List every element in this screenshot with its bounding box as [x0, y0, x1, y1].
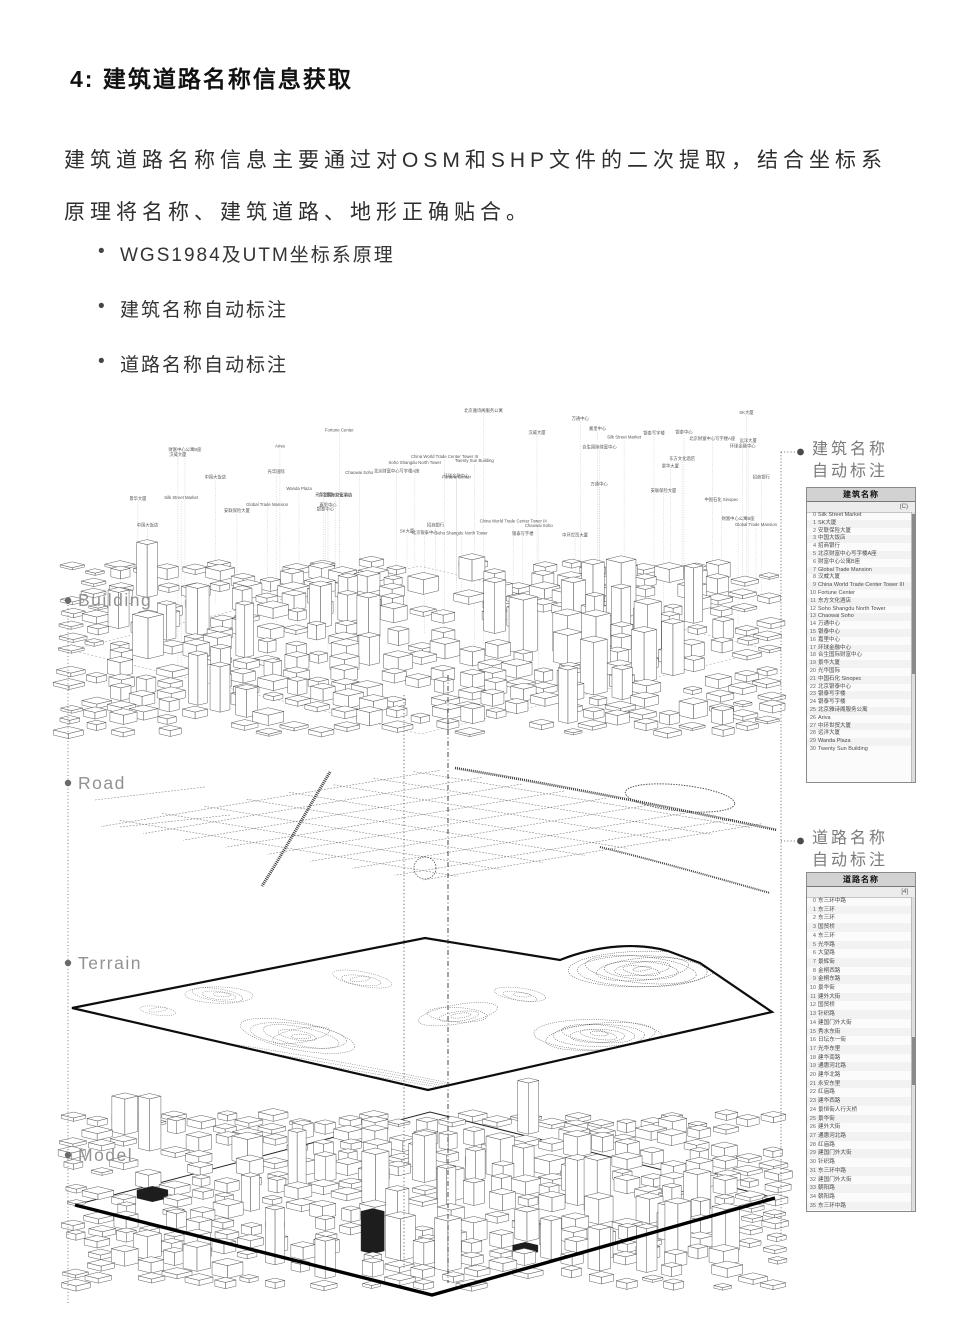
svg-text:Silk Street Market: Silk Street Market [164, 495, 199, 500]
city-block [241, 1222, 261, 1235]
bullet-icon: • [98, 351, 107, 373]
city-block [713, 1124, 738, 1134]
city-block [308, 621, 326, 640]
city-block [464, 1127, 485, 1146]
city-block [60, 716, 80, 724]
city-block [82, 610, 111, 624]
building-names-panel: 建筑名称 (C) 0Silk Street Market1SK大厦2安联保险大厦… [806, 487, 916, 783]
list-item[interactable]: 1SK大厦 [807, 520, 911, 528]
list-item[interactable]: 35东三环中路 [807, 1202, 911, 1211]
city-block [82, 1126, 112, 1140]
svg-text:Silk Street Market: Silk Street Market [607, 434, 642, 439]
city-block [258, 601, 289, 619]
city-block [684, 686, 702, 694]
model-layer-city [58, 1078, 792, 1295]
city-block [735, 670, 759, 682]
city-block [387, 706, 407, 718]
list-item[interactable]: 5光华路 [807, 941, 911, 950]
city-block [359, 632, 380, 665]
city-block [509, 593, 537, 654]
city-block [266, 1278, 285, 1288]
city-block [362, 1258, 383, 1277]
city-block [284, 1182, 312, 1200]
city-block [84, 1235, 110, 1248]
city-block [341, 1139, 362, 1151]
city-block [316, 1215, 335, 1230]
list-item[interactable]: 1东三环 [807, 906, 911, 915]
city-block [87, 720, 106, 730]
city-block [715, 1110, 738, 1121]
city-block [112, 727, 135, 737]
list-item[interactable]: 26建外大街 [807, 1123, 911, 1132]
city-block [589, 696, 607, 706]
city-block [534, 668, 552, 682]
svg-text:东方文化酒店: 东方文化酒店 [669, 455, 695, 462]
list-item[interactable]: 14万通中心 [807, 621, 911, 629]
city-block [762, 1217, 789, 1229]
svg-text:Chaowai Soho: Chaowai Soho [525, 523, 554, 528]
list-item[interactable]: 26Ariva [807, 715, 911, 723]
list-item[interactable]: 5北京财富中心写字楼A座 [807, 551, 911, 559]
city-block [192, 1175, 210, 1187]
svg-text:银泰写字楼: 银泰写字楼 [512, 530, 534, 537]
list-item[interactable]: 23建华西路 [807, 1097, 911, 1106]
city-block [563, 1130, 591, 1157]
list-item[interactable]: 0东三环中路 [807, 897, 911, 906]
city-block [712, 725, 734, 737]
city-block [334, 722, 360, 732]
city-block [612, 665, 632, 700]
city-block [167, 1209, 187, 1229]
city-block [654, 727, 682, 738]
list-item[interactable]: 20光华国际 [807, 668, 911, 676]
city-block [311, 1280, 337, 1290]
city-block [86, 569, 105, 576]
city-block [159, 725, 181, 736]
city-block [580, 636, 607, 695]
city-block [588, 1119, 614, 1128]
building-panel-list[interactable]: 0Silk Street Market1SK大厦2安联保险大厦3中国大饭店4招商… [807, 512, 911, 782]
building-panel-scrollbar[interactable] [911, 512, 915, 782]
city-block [314, 1152, 336, 1182]
svg-text:北京财富中心写字楼A座: 北京财富中心写字楼A座 [689, 435, 736, 442]
list-item[interactable]: 21永安东里 [807, 1080, 911, 1089]
svg-text:招商银行: 招商银行 [427, 522, 445, 529]
city-block [765, 1181, 791, 1193]
city-block [617, 1119, 636, 1133]
city-block [256, 728, 281, 736]
list-item[interactable]: 8汉威大厦 [807, 574, 911, 582]
city-block [213, 1199, 243, 1219]
city-block [742, 1214, 763, 1223]
city-block [158, 714, 176, 724]
city-block [88, 1249, 113, 1260]
list-item[interactable]: 32建国门外大街 [807, 1176, 911, 1185]
list-item[interactable]: 17光华东里 [807, 1045, 911, 1054]
city-block [57, 666, 86, 677]
list-item[interactable]: 4招商银行 [807, 543, 911, 551]
list-item[interactable]: 23银泰写字楼 [807, 691, 911, 699]
city-block [264, 692, 283, 701]
city-block [679, 698, 708, 719]
city-block [138, 1257, 164, 1273]
svg-text:中环世贸大厦: 中环世贸大厦 [562, 531, 588, 538]
svg-text:环球金融中心: 环球金融中心 [730, 442, 756, 449]
city-block [563, 559, 581, 568]
city-block [156, 564, 178, 580]
city-block [212, 1218, 234, 1229]
list-item[interactable]: 10景华街 [807, 984, 911, 993]
city-block [354, 570, 380, 593]
city-block [58, 645, 84, 653]
list-item[interactable]: 15银泰中心 [807, 629, 911, 637]
city-block [438, 1164, 456, 1210]
city-block [333, 689, 363, 709]
city-block [233, 657, 259, 670]
intro-paragraph: 建筑道路名称信息主要通过对OSM和SHP文件的二次提取，结合坐标系原理将名称、建… [64, 135, 909, 239]
list-item[interactable]: 28远洋大厦 [807, 730, 911, 738]
city-block [628, 708, 656, 720]
city-block [683, 655, 704, 671]
city-block [288, 1128, 306, 1188]
list-item[interactable]: 14建国门外大街 [807, 1019, 911, 1028]
list-item[interactable]: 34朝阳路 [807, 1193, 911, 1202]
city-block [183, 564, 208, 575]
list-item[interactable]: 31东三环中路 [807, 1167, 911, 1176]
city-block [387, 565, 406, 574]
list-item[interactable]: 25景华街 [807, 1115, 911, 1124]
city-block [455, 728, 485, 737]
city-block [62, 1279, 90, 1291]
city-block [380, 602, 407, 622]
city-block [186, 1132, 211, 1153]
city-block [760, 573, 779, 580]
road-panel-scrollbar[interactable] [911, 897, 915, 1211]
city-block [260, 577, 280, 591]
city-block [463, 1178, 484, 1206]
city-block [406, 674, 431, 688]
building-panel-title: 建筑名称 [807, 488, 915, 502]
city-block [485, 1211, 508, 1223]
list-item[interactable]: 28红庙路 [807, 1141, 911, 1150]
city-block [414, 1279, 434, 1290]
city-block [309, 727, 334, 737]
city-block [361, 1209, 384, 1254]
city-block [486, 708, 506, 719]
city-block [461, 669, 485, 688]
city-block [85, 639, 103, 647]
list-item[interactable]: 0Silk Street Market [807, 512, 911, 520]
list-item[interactable]: 9金桐东路 [807, 975, 911, 984]
city-block [739, 1225, 762, 1235]
city-block [263, 1195, 282, 1205]
city-block [91, 1168, 113, 1176]
city-block [714, 1283, 732, 1290]
city-block [443, 1272, 464, 1283]
list-item[interactable]: 24银泰写字楼 [807, 699, 911, 707]
city-block [489, 1257, 517, 1272]
model-layer-label: Model [78, 1145, 133, 1165]
svg-text:Soho Shangdu North Tower: Soho Shangdu North Tower [389, 460, 442, 465]
city-block [187, 1115, 216, 1129]
city-block [61, 1112, 86, 1121]
city-block [339, 1115, 361, 1127]
city-block [385, 1212, 415, 1261]
city-block [210, 662, 230, 712]
list-item[interactable]: 22红庙路 [807, 1088, 911, 1097]
list-item[interactable]: 16日坛东一街 [807, 1036, 911, 1045]
building-layer-label: Building [78, 590, 152, 610]
list-item[interactable]: 13Chaowai Soho [807, 613, 911, 621]
city-block [288, 677, 307, 696]
city-block [87, 1116, 107, 1127]
city-block [193, 1187, 214, 1199]
city-block [111, 683, 131, 701]
city-block [612, 1152, 642, 1170]
city-block [432, 610, 455, 624]
list-item[interactable]: 2东三环 [807, 914, 911, 923]
svg-text:光华国际: 光华国际 [268, 468, 286, 475]
svg-text:中国大饭店: 中国大饭店 [205, 474, 227, 481]
list-item[interactable]: 19景华大厦 [807, 660, 911, 668]
list-item[interactable]: 15秀水东街 [807, 1028, 911, 1037]
city-block [740, 1178, 758, 1188]
list-item[interactable]: 11东方文化酒店 [807, 598, 911, 606]
city-block [539, 1191, 565, 1212]
city-block [631, 626, 656, 682]
city-block [731, 576, 759, 586]
city-block [413, 1238, 434, 1265]
city-block [640, 1147, 663, 1165]
svg-text:景华大厦: 景华大厦 [129, 495, 147, 502]
list-item[interactable]: 11建外大街 [807, 993, 911, 1002]
city-block [661, 1262, 681, 1276]
city-block [218, 1111, 237, 1121]
city-block [481, 689, 504, 706]
city-block [362, 1148, 389, 1205]
city-block [334, 1125, 363, 1141]
city-block [763, 1210, 785, 1218]
city-block [259, 638, 277, 653]
city-block [89, 1225, 116, 1237]
road-names-panel: 道路名称 [4] 0东三环中路1东三环2东三环3国贸桥4东三环5光华路6大望路7… [806, 872, 916, 1212]
city-block [411, 1265, 434, 1279]
page-title: 4: 建筑道路名称信息获取 [70, 60, 353, 94]
city-block [435, 1215, 462, 1272]
city-block [241, 1173, 259, 1212]
city-block [258, 1108, 288, 1121]
svg-text:招商银行: 招商银行 [753, 474, 771, 481]
city-block [688, 1244, 708, 1259]
svg-text:银泰写字楼: 银泰写字楼 [643, 429, 665, 436]
list-item[interactable]: 19通惠河北路 [807, 1062, 911, 1071]
city-block [564, 729, 582, 735]
city-block [713, 1155, 738, 1169]
svg-text:Wanda Plaza: Wanda Plaza [286, 486, 312, 491]
city-block [111, 566, 130, 579]
city-block [338, 590, 358, 622]
city-block [591, 1132, 613, 1152]
city-block [734, 700, 752, 707]
list-item[interactable]: 6财富中心公寓B座 [807, 559, 911, 567]
city-block [489, 1189, 515, 1211]
road-panel-list[interactable]: 0东三环中路1东三环2东三环3国贸桥4东三环5光华路6大望路7景辉街8金桐西路9… [807, 897, 911, 1211]
city-block [67, 1230, 85, 1240]
city-block [388, 626, 409, 645]
city-block [157, 664, 188, 678]
svg-text:Chaowai Soho: Chaowai Soho [345, 470, 374, 475]
road-annotation-bullet-icon [797, 838, 804, 845]
svg-text:安联保险大厦: 安联保险大厦 [224, 507, 250, 514]
city-block [315, 1236, 336, 1278]
terrain-layer-label: Terrain [78, 953, 142, 973]
city-block [263, 1134, 287, 1146]
svg-text:Fortune Center: Fortune Center [442, 475, 471, 480]
city-block [711, 637, 733, 653]
list-item[interactable]: 20建华北路 [807, 1071, 911, 1080]
city-block [159, 583, 179, 593]
list-item[interactable]: 29Wanda Plaza [807, 738, 911, 746]
city-block [138, 1094, 161, 1152]
city-block [60, 562, 84, 570]
list-item[interactable]: 4东三环 [807, 932, 911, 941]
list-item[interactable]: 6大望路 [807, 949, 911, 958]
city-block [583, 707, 604, 719]
city-block [86, 672, 106, 683]
city-block [636, 585, 655, 597]
city-block [679, 722, 705, 730]
city-block [454, 590, 484, 605]
city-block [634, 718, 658, 730]
city-block [59, 633, 87, 643]
list-item[interactable]: 3国贸桥 [807, 923, 911, 932]
list-item[interactable]: 18合生国际财富中心 [807, 652, 911, 660]
city-block [642, 1275, 663, 1282]
city-block [212, 1258, 243, 1278]
list-item[interactable]: 12国贸桥 [807, 1001, 911, 1010]
list-item[interactable]: 8金桐西路 [807, 967, 911, 976]
city-block [182, 706, 207, 719]
svg-text:嘉里中心: 嘉里中心 [589, 425, 607, 432]
city-block [332, 706, 358, 719]
city-block [231, 668, 256, 683]
svg-text:万通中心: 万通中心 [572, 415, 590, 422]
list-item[interactable]: 21中国石化 Sinopec [807, 676, 911, 684]
city-block [462, 1238, 482, 1254]
svg-text:安联保险大厦: 安联保险大厦 [651, 487, 677, 494]
list-item[interactable]: 12Soho Shangdu North Tower [807, 606, 911, 614]
city-block [164, 1247, 186, 1265]
list-item[interactable]: 10Fortune Center [807, 590, 911, 598]
city-block [763, 1245, 786, 1254]
city-block [268, 1176, 286, 1193]
list-item[interactable]: 16嘉里中心 [807, 637, 911, 645]
city-block [558, 665, 577, 723]
city-block [518, 1195, 538, 1207]
city-block [382, 721, 413, 733]
city-block [705, 673, 731, 688]
list-item[interactable]: 24景恒街人行天桥 [807, 1106, 911, 1115]
city-block [107, 656, 132, 676]
city-block [657, 1129, 686, 1146]
city-block [382, 668, 406, 683]
building-layer-city [53, 540, 785, 739]
list-item[interactable]: 13针织路 [807, 1010, 911, 1019]
building-layer-bullet-icon [65, 597, 71, 603]
city-block [659, 710, 679, 725]
svg-text:汉威大厦: 汉威大厦 [169, 451, 187, 458]
city-block [614, 1251, 637, 1265]
svg-text:万通中心: 万通中心 [590, 480, 608, 487]
city-block [412, 1130, 436, 1182]
city-block [240, 1275, 258, 1283]
list-item[interactable]: 30针织路 [807, 1158, 911, 1167]
svg-text:景华大厦: 景华大厦 [662, 463, 680, 470]
city-block [112, 1093, 138, 1135]
city-block [161, 1146, 189, 1157]
city-block [655, 563, 684, 583]
city-block [83, 707, 106, 719]
city-block [85, 1272, 111, 1283]
city-block [359, 556, 384, 568]
city-block [183, 1241, 211, 1272]
city-block [159, 697, 179, 712]
city-block [578, 720, 606, 730]
city-block [736, 721, 758, 731]
city-block [485, 639, 510, 658]
city-block [763, 1147, 782, 1158]
city-block [538, 1138, 565, 1152]
building-annotation-bullet-icon [797, 449, 804, 456]
city-block [61, 705, 83, 713]
bullet-icon: • [98, 296, 107, 318]
city-block [688, 625, 707, 635]
list-item[interactable]: 25北京雅诗阁服务公寓 [807, 707, 911, 715]
city-block [137, 540, 158, 598]
city-block [589, 1271, 613, 1284]
city-block [530, 719, 554, 729]
city-block [490, 1230, 513, 1249]
city-block [310, 651, 328, 663]
list-item[interactable]: 7景辉街 [807, 958, 911, 967]
city-block [167, 1117, 185, 1134]
list-item[interactable]: 9China World Trade Center Tower III [807, 582, 911, 590]
city-block [206, 564, 235, 581]
city-block [138, 1273, 165, 1283]
city-block [761, 1111, 786, 1123]
svg-text:合生国际财富中心: 合生国际财富中心 [582, 444, 617, 451]
city-block [188, 1162, 213, 1176]
city-block [484, 577, 506, 633]
list-item[interactable]: 18建华南路 [807, 1054, 911, 1063]
list-item[interactable]: 33朝阳路 [807, 1184, 911, 1193]
city-block [258, 674, 289, 691]
list-item[interactable]: 27通惠河北路 [807, 1132, 911, 1141]
city-block [342, 1206, 360, 1222]
building-annotation-label: 建筑名称 自动标注 [812, 439, 932, 483]
list-item[interactable]: 30Twenty Sun Building [807, 746, 911, 754]
city-block [505, 698, 528, 713]
city-block [435, 1149, 459, 1163]
city-block [210, 581, 229, 592]
city-block [333, 1158, 362, 1176]
city-block [311, 683, 335, 701]
road-layer-bullet-icon [65, 780, 71, 786]
city-block [340, 1223, 362, 1235]
city-block [518, 1078, 539, 1134]
list-item[interactable]: 29建国门外大街 [807, 1149, 911, 1158]
city-block [188, 651, 207, 705]
